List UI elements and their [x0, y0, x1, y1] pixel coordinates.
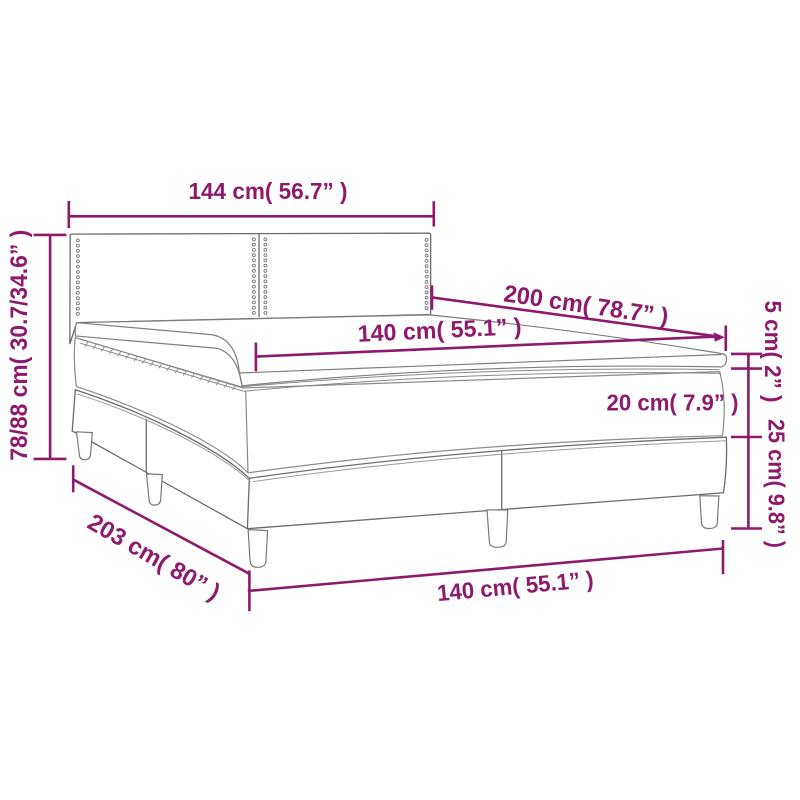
svg-text:5 cm( 2” ): 5 cm( 2” ) [760, 301, 786, 403]
svg-text:144 cm( 56.7” ): 144 cm( 56.7” ) [189, 178, 348, 204]
svg-text:78/88 cm( 30.7/34.6” ): 78/88 cm( 30.7/34.6” ) [6, 230, 33, 461]
svg-text:25 cm( 9.8” ): 25 cm( 9.8” ) [764, 419, 790, 548]
svg-text:20 cm( 7.9” ): 20 cm( 7.9” ) [607, 390, 739, 416]
